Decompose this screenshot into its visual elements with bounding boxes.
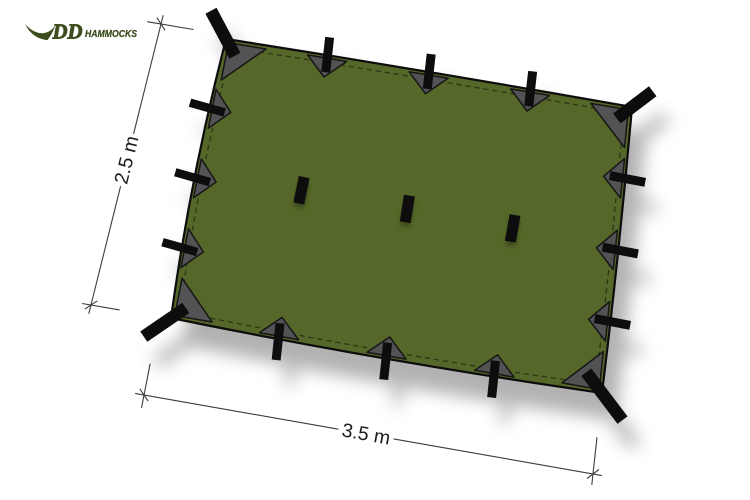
svg-text:DD: DD	[52, 20, 83, 44]
svg-text:HAMMOCKS: HAMMOCKS	[85, 29, 137, 40]
